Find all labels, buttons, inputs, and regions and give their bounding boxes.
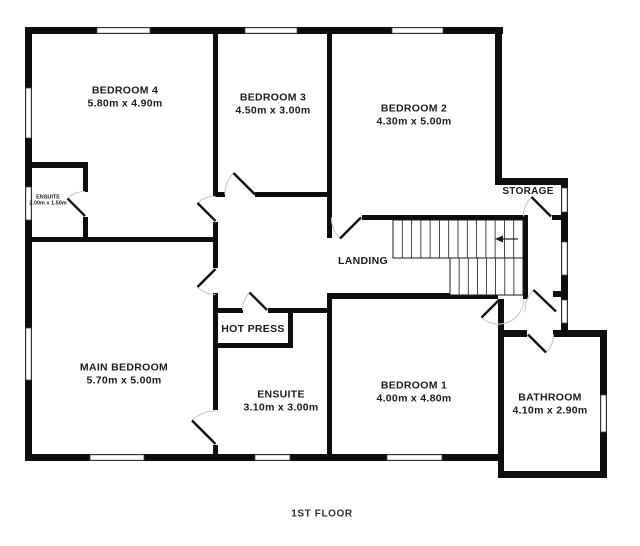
wall-hotpress-top-left [218,308,243,313]
window-corridor-right-upper [562,242,567,275]
room-label-ensuite-small: ENSUITE 2.00m x 1.50m [29,195,66,208]
wall-hotpress-top-right [268,308,332,313]
wall-landing-left-upper [213,222,218,268]
wall-bathroom-bottom [498,471,607,478]
window-corridor-right-lower [562,300,567,323]
floor-plan-drawing [0,0,640,546]
room-dims: 4.10m x 2.90m [512,404,587,417]
floor-title: 1ST FLOOR [291,509,353,520]
window-main-bedroom-left [26,328,31,380]
room-name: STORAGE [502,186,553,197]
room-dims: 4.00m x 4.80m [376,392,451,405]
room-name: ENSUITE [36,195,60,201]
door-storage [523,197,551,217]
wall-corridor-stub [553,291,562,297]
room-label-landing: LANDING [338,255,388,268]
wall-storage-top [495,178,568,185]
staircase [393,220,523,295]
room-dims: 5.80m x 4.90m [87,97,162,110]
room-label-bathroom: BATHROOM 4.10m x 2.90m [512,392,587,417]
room-name: BEDROOM 2 [381,103,447,115]
room-dims: 4.50m x 3.00m [235,104,310,117]
room-name: BATHROOM [518,392,581,404]
door-bedroom-3 [225,173,255,195]
window-bedroom3-top [245,28,297,33]
door-bedroom-2 [331,218,361,239]
room-label-bedroom-1: BEDROOM 1 4.00m x 4.80m [376,380,451,405]
wall-hotpress-bottom [218,343,293,348]
room-label-hot-press: HOT PRESS [221,323,284,336]
wall-small-ensuite-top [25,162,88,168]
wall-bed4-mainbed-divider [32,237,213,242]
door-hot-press [242,293,267,311]
room-name: BEDROOM 1 [381,380,447,392]
window-bedroom1-bottom [387,455,442,460]
door-main-bedroom [198,269,216,295]
window-bathroom-right [601,395,606,432]
door-ensuite-main [192,411,216,444]
room-label-main-bedroom: MAIN BEDROOM 5.70m x 5.00m [80,362,168,387]
wall-bathroom-left [498,299,504,471]
wall-stairs-right [523,215,528,299]
wall-small-ensuite-right-upper [83,168,88,192]
wall-bed2-bed3-divider [327,34,332,238]
wall-bed3-bottom-right [255,192,332,197]
wall-small-ensuite-right-lower [83,217,88,242]
window-ensuite-bottom [255,455,290,460]
room-label-bedroom-3: BEDROOM 3 4.50m x 3.00m [235,92,310,117]
floor-plan-canvas: BEDROOM 4 5.80m x 4.90m BEDROOM 3 4.50m … [0,0,640,546]
room-name: BEDROOM 4 [92,85,158,97]
door-corridor [525,290,556,312]
wall-stairs-top [362,215,524,220]
room-label-bedroom-2: BEDROOM 2 4.30m x 5.00m [376,103,451,128]
room-dims: 3.10m x 3.00m [243,401,318,414]
wall-ensuite-left-stub [213,445,218,455]
room-dims: 5.70m x 5.00m [80,374,168,387]
window-bedroom4-top [97,28,150,33]
wall-bathroom-top-right [553,330,607,337]
window-main-bedroom-bottom [90,455,144,460]
window-storage-right [562,188,567,212]
room-name: HOT PRESS [221,323,284,335]
room-label-bedroom-4: BEDROOM 4 5.80m x 4.90m [87,85,162,110]
wall-ensuite-bed1-divider [327,297,332,455]
door-bathroom [528,335,554,353]
room-dims: 2.00m x 1.50m [29,201,66,207]
room-name: MAIN BEDROOM [80,362,168,374]
room-name: BEDROOM 3 [240,92,306,104]
wall-hotpress-right [288,308,293,348]
room-name: ENSUITE [257,389,305,401]
window-bedroom4-left [26,88,31,138]
wall-exterior-right-upper [495,27,502,185]
wall-landing-left-lower [213,293,218,410]
door-ensuite-small [68,191,86,216]
room-label-storage: STORAGE [502,186,553,199]
window-bedroom2-top [392,28,443,33]
room-dims: 4.30m x 5.00m [376,115,451,128]
wall-storage-bottom-right [552,215,568,220]
wall-bed3-bed4-divider [213,34,218,195]
door-bedroom-4 [198,196,216,221]
room-label-ensuite-main: ENSUITE 3.10m x 3.00m [243,389,318,414]
room-name: LANDING [338,255,388,267]
